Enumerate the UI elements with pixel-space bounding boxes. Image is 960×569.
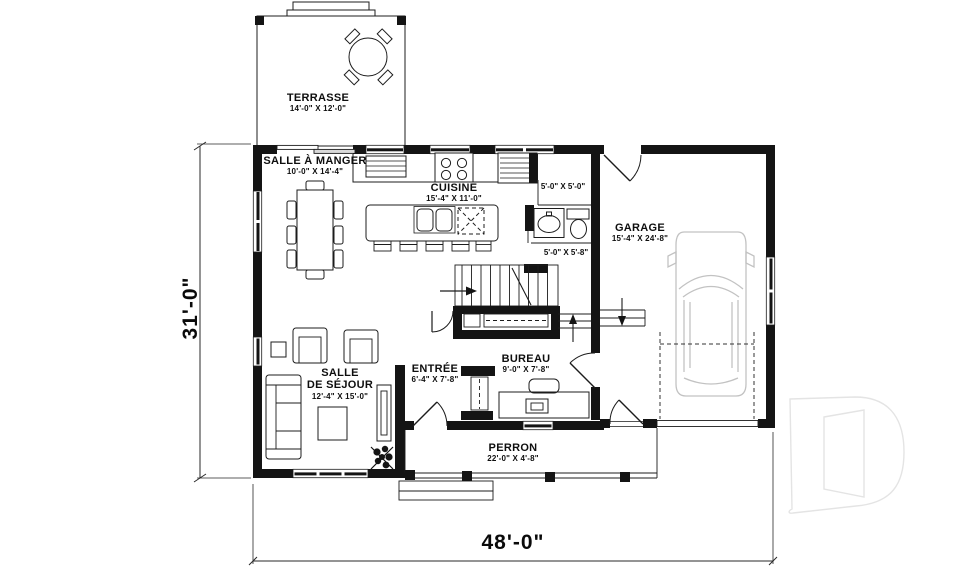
dishwasher-icon (458, 208, 484, 234)
room-dims: 14'-0" X 12'-0" (287, 105, 349, 114)
garage-door-panel (657, 421, 758, 427)
sofa-icon (266, 375, 301, 459)
desk-chair-icon (529, 379, 559, 393)
garage-hall-door-icon (570, 353, 595, 388)
window-icon (253, 191, 261, 252)
laptop-icon (526, 399, 548, 413)
room-name: GARAGE (612, 222, 668, 234)
garage-entry-door-icon (604, 155, 641, 181)
step-arrow-down (618, 298, 626, 326)
room-label-cuisine: CUISINE 15'-4" X 11'-0" (426, 182, 482, 204)
room-name: PERRON (487, 442, 539, 454)
porch-step (399, 491, 493, 500)
terrace-step (293, 2, 369, 10)
room-name: DE SÉJOUR (307, 379, 373, 391)
room-name: BUREAU (502, 353, 551, 365)
floor-plan-canvas: TERRASSE 14'-0" X 12'-0" SALLE À MANGER … (0, 0, 960, 569)
patio-table-icon (344, 29, 393, 85)
toilet-icon (567, 209, 589, 239)
room-name: SALLE (307, 367, 373, 379)
upper-cabinet-icon (366, 156, 406, 177)
room-label-salle-de-sejour: SALLE DE SÉJOUR 12'-4" X 15'-0" (307, 367, 373, 402)
porch-post (405, 470, 415, 480)
powder-room (528, 209, 591, 244)
floor-plan-drawing (0, 0, 960, 569)
stove-icon (435, 153, 473, 182)
armchair-icon (293, 328, 327, 363)
coffee-table-icon (318, 407, 347, 440)
kitchen-island (366, 205, 498, 241)
bar-stools (374, 241, 491, 251)
terrace-step (287, 10, 375, 16)
sink-icon (417, 209, 433, 231)
room-name: CUISINE (426, 182, 482, 194)
window-icon (366, 145, 404, 153)
stair-closet-door-icon (432, 311, 453, 332)
bureau-desk (499, 379, 589, 418)
window-icon (253, 337, 261, 366)
garage-door-track (660, 332, 754, 419)
room-dims: 6'-4" X 7'-8" (412, 376, 459, 385)
patio-door-icon (277, 145, 355, 153)
room-label-terrasse: TERRASSE 14'-0" X 12'-0" (287, 92, 349, 114)
room-dims: 15'-4" X 24'-8" (612, 235, 668, 244)
porch-post (620, 472, 630, 482)
porch-post (462, 471, 472, 481)
terrace (255, 2, 406, 146)
porch-step (399, 481, 493, 491)
fridge-icon (498, 153, 537, 183)
terrace-post (255, 16, 264, 25)
room-dims: 10'-0" X 14'-4" (263, 168, 366, 177)
room-label-perron: PERRON 22'-0" X 4'-8" (487, 442, 539, 464)
overall-depth-dimension: 31'-0" (179, 277, 203, 340)
room-name: TERRASSE (287, 92, 349, 104)
entry-closet (461, 366, 495, 420)
room-dims: 22'-0" X 4'-8" (487, 455, 539, 464)
dining-table-icon (287, 181, 343, 279)
window-icon (766, 257, 774, 325)
window-icon (430, 145, 470, 153)
front-door-icon (413, 402, 447, 426)
window-icon (293, 469, 368, 477)
terrace-outline (257, 16, 405, 146)
garage-steps (558, 298, 645, 342)
room-label-bureau: BUREAU 9'-0" X 7'-8" (502, 353, 551, 375)
powder-room-dims: 5'-0" X 5'-8" (544, 248, 588, 257)
window-icon (495, 145, 554, 153)
desk-icon (499, 392, 589, 418)
room-label-salle-a-manger: SALLE À MANGER 10'-0" X 14'-4" (263, 155, 366, 177)
room-dims: 12'-4" X 15'-0" (307, 393, 373, 402)
terrace-post (397, 16, 406, 25)
room-label-garage: GARAGE 15'-4" X 24'-8" (612, 222, 668, 244)
room-dims: 9'-0" X 7'-8" (502, 366, 551, 375)
window-icon (523, 421, 553, 429)
under-stair-closet (453, 306, 560, 339)
bathroom-sink-icon (534, 209, 564, 238)
garage-porch-door-icon (610, 400, 643, 424)
watermark-logo (789, 397, 904, 513)
overall-width-dimension: 48'-0" (482, 531, 545, 555)
porch-post (545, 472, 555, 482)
room-name: SALLE À MANGER (263, 155, 366, 167)
plant-icon (371, 446, 393, 469)
pantry-dims: 5'-0" X 5'-0" (541, 182, 585, 191)
side-table-icon (271, 342, 286, 357)
room-label-entree: ENTRÉE 6'-4" X 7'-8" (412, 363, 459, 385)
room-dims: 15'-4" X 11'-0" (426, 195, 482, 204)
room-name: ENTRÉE (412, 363, 459, 375)
tv-unit-icon (377, 385, 391, 441)
garage (610, 232, 758, 427)
car-icon (668, 232, 754, 396)
sink-icon (436, 209, 452, 231)
armchair-icon (344, 330, 378, 363)
